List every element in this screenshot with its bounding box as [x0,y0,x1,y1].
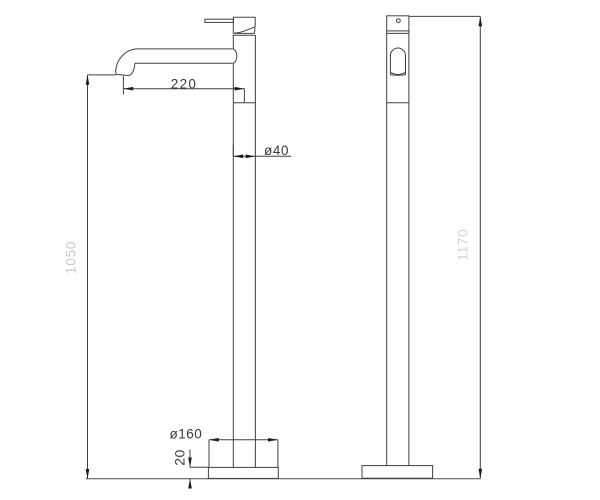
svg-text:ø160: ø160 [170,427,203,442]
svg-text:20: 20 [172,449,188,466]
svg-text:ø40: ø40 [264,143,289,158]
svg-text:1050: 1050 [63,241,79,274]
svg-text:220: 220 [171,76,197,91]
svg-text:1170: 1170 [455,229,471,261]
